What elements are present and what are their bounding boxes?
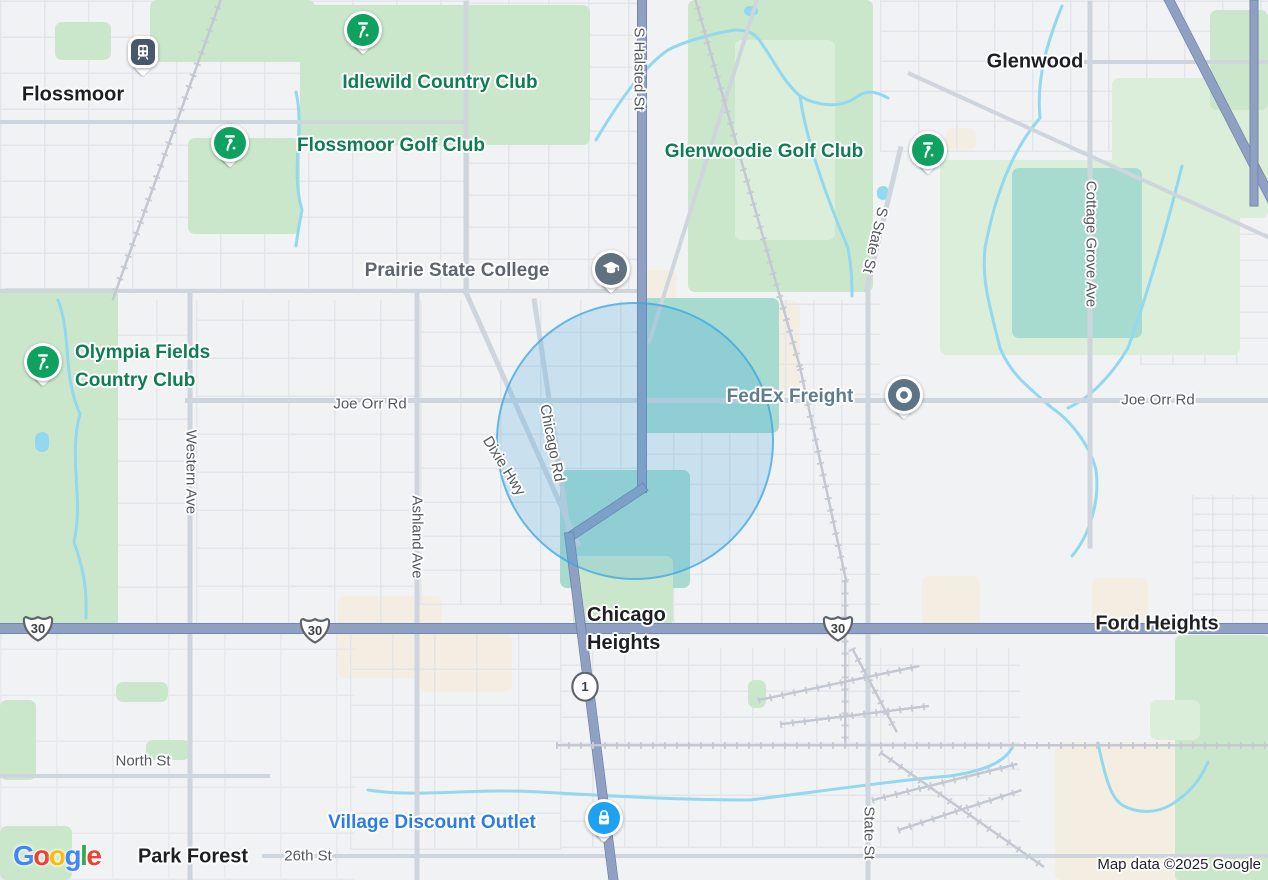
highlight-circle: [496, 302, 774, 580]
creek: [1098, 743, 1208, 811]
street-label-western-ave: Western Ave: [183, 430, 200, 515]
google-logo-letter: g: [65, 840, 81, 871]
road-segment: [866, 290, 871, 880]
google-logo-letter: o: [33, 840, 49, 871]
pin-head: [585, 799, 623, 837]
railroad-segment: [842, 580, 849, 747]
creek: [984, 6, 1097, 556]
golf-flag-icon: [27, 346, 59, 378]
street-label-north-st: North St: [115, 753, 170, 770]
pin-head: [909, 131, 947, 169]
street-label-joe-orr-rd-w: Joe Orr Rd: [333, 396, 406, 413]
pin-head: [211, 124, 249, 162]
golf-flag-icon: [347, 14, 379, 46]
map-attribution: Map data ©2025 Google: [1097, 856, 1261, 873]
street-label-cottage-grove-ave: Cottage Grove Ave: [1083, 181, 1100, 307]
poi-label-village-discount-outlet[interactable]: Village Discount Outlet: [328, 812, 536, 834]
google-logo-letter: e: [86, 840, 100, 871]
city-label-chicago-heights: ChicagoHeights: [587, 601, 666, 657]
route-shield-us-30-mid: 30: [299, 614, 331, 646]
google-logo-letter: o: [49, 840, 65, 871]
route-shield-us-30-east: 30: [822, 612, 854, 644]
city-label-flossmoor: Flossmoor: [22, 84, 124, 107]
train-station-icon: [131, 39, 155, 65]
google-logo[interactable]: Google: [13, 840, 100, 872]
creek: [800, 96, 852, 296]
pin-head: [592, 250, 630, 288]
city-label-park-forest: Park Forest: [138, 846, 248, 869]
poi-label-olympia-fields-country-club[interactable]: Olympia FieldsCountry Club: [75, 339, 210, 395]
route-shield-il-1: 1: [569, 672, 601, 704]
street-label-ashland-ave: Ashland Ave: [409, 495, 426, 578]
creek: [296, 92, 302, 246]
poi-label-flossmoor-golf-club[interactable]: Flossmoor Golf Club: [297, 135, 485, 157]
street-label-joe-orr-rd-e: Joe Orr Rd: [1121, 392, 1194, 409]
road-segment: [1251, 0, 1258, 205]
road-segment: [0, 774, 270, 778]
city-label-ford-heights: Ford Heights: [1095, 613, 1218, 636]
pin-head: [344, 11, 382, 49]
street-label-state-st: State St: [861, 806, 878, 859]
map-canvas[interactable]: 3030301 FlossmoorGlenwoodPark ForestFord…: [0, 0, 1268, 880]
shopping-bag-icon: [588, 802, 620, 834]
route-shield-us-30-west: 30: [22, 612, 54, 644]
railroad-segment: [556, 742, 1268, 749]
graduation-cap-icon: [595, 253, 627, 285]
city-label-glenwood: Glenwood: [987, 51, 1084, 74]
pin-head: [885, 376, 923, 414]
business-dot-icon: [888, 379, 920, 411]
street-label-s-halsted-st: S Halsted St: [631, 27, 648, 110]
golf-flag-icon: [912, 134, 944, 166]
golf-flag-icon: [214, 127, 246, 159]
google-logo-letter: G: [13, 840, 33, 871]
road-segment: [415, 292, 420, 880]
road-segment: [0, 289, 646, 293]
poi-label-idlewild-country-club[interactable]: Idlewild Country Club: [342, 72, 537, 94]
poi-label-prairie-state-college[interactable]: Prairie State College: [365, 260, 550, 282]
poi-label-fedex-freight[interactable]: FedEx Freight: [727, 386, 854, 408]
pin-head: [24, 343, 62, 381]
road-segment: [0, 120, 468, 124]
poi-label-glenwoodie-golf-club[interactable]: Glenwoodie Golf Club: [665, 141, 863, 163]
pin-head: [128, 36, 158, 68]
street-label-26th-st: 26th St: [284, 848, 332, 865]
